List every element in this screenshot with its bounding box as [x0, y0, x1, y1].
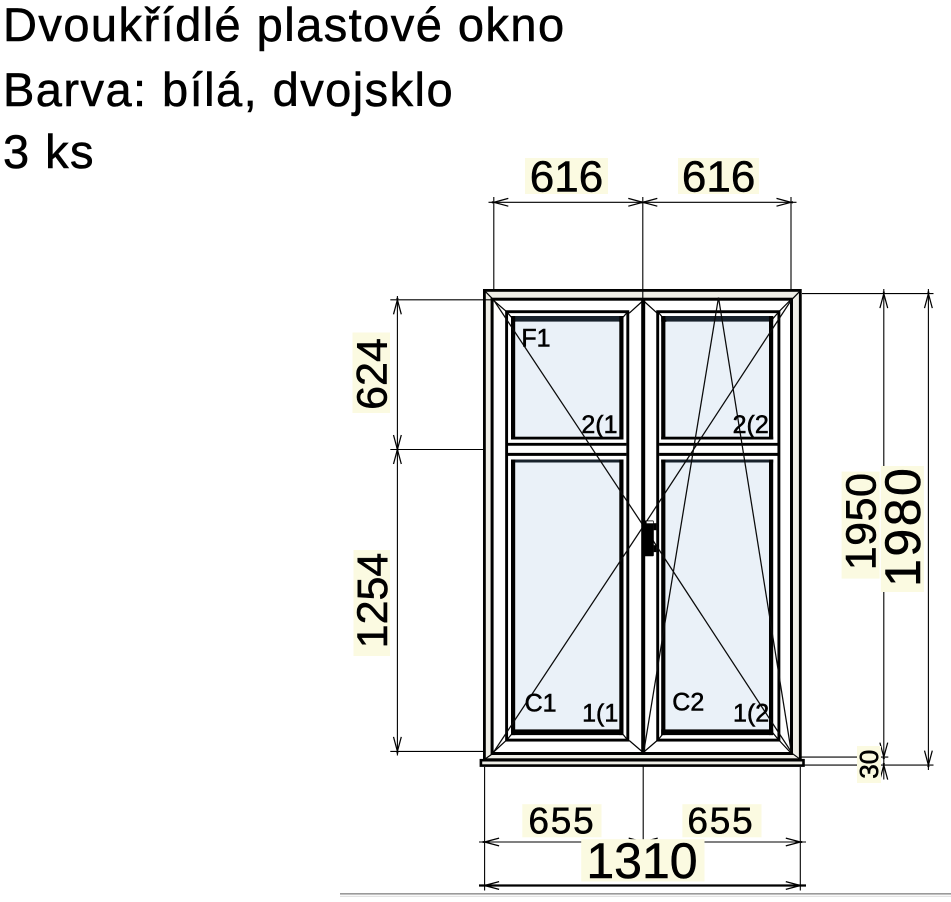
svg-text:616: 616: [682, 153, 755, 202]
svg-text:1310: 1310: [586, 833, 697, 889]
svg-text:1980: 1980: [875, 466, 931, 587]
svg-text:C2: C2: [672, 689, 704, 717]
svg-text:616: 616: [530, 153, 603, 202]
svg-text:C1: C1: [525, 690, 557, 718]
svg-text:2(1: 2(1: [581, 411, 617, 439]
svg-text:1(2: 1(2: [733, 700, 769, 728]
svg-text:2(2: 2(2: [733, 411, 769, 439]
svg-text:624: 624: [348, 338, 396, 410]
svg-text:30: 30: [854, 750, 884, 779]
svg-text:1(1: 1(1: [582, 700, 618, 728]
svg-text:1254: 1254: [349, 553, 397, 649]
svg-text:F1: F1: [521, 325, 550, 353]
